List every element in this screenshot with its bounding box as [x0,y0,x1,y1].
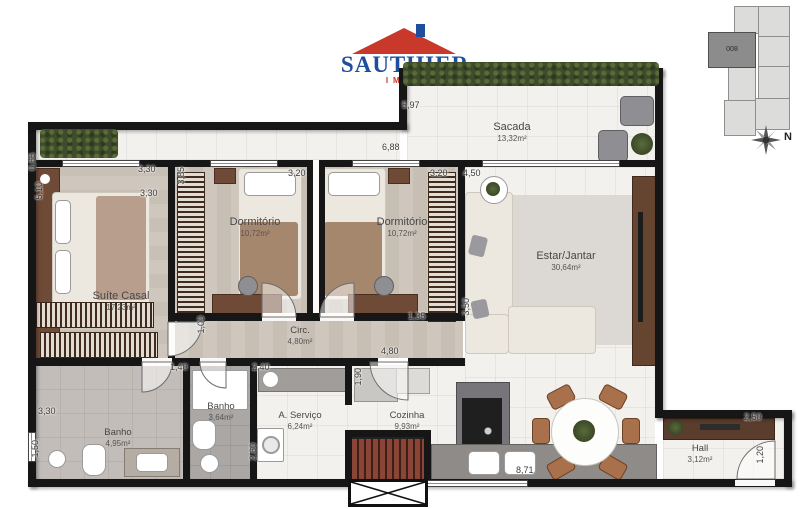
room-area: 9,93m² [367,422,447,431]
dim-label: 1,20 [755,446,765,464]
dorm2-door-arc [320,283,354,317]
room-label-circ: Circ. 4,80m² [268,326,332,346]
room-name: Dormitório [205,216,305,229]
dim-label: 4,50 [463,168,481,178]
banho-social-door-arc [200,362,226,388]
room-name: Hall [670,444,730,455]
room-area: 4,95m² [87,439,149,448]
room-label-sacada: Sacada 13,32m² [472,121,552,143]
room-name: Banho [192,402,250,413]
room-area: 17,23m² [71,303,171,312]
dim-label: 8,71 [516,465,534,475]
room-label-estar: Estar/Jantar 30,64m² [516,250,616,272]
room-area: 3,64m² [192,413,250,422]
dorm1-door-arc [262,283,296,317]
dim-label: 1,35 [408,311,426,321]
room-area: 6,24m² [260,422,340,431]
room-name: Estar/Jantar [516,250,616,263]
room-name: Sacada [472,121,552,134]
dim-label: 5,10 [34,182,44,200]
dim-label: 1,00 [196,316,206,334]
dim-label: 3,30 [38,406,56,416]
room-label-banho-suite: Banho 4,95m² [87,428,149,448]
room-area: 4,80m² [268,337,332,346]
dim-label: 3,30 [138,164,156,174]
room-label-banho-social: Banho 3,64m² [192,402,250,422]
room-area: 30,64m² [516,263,616,272]
room-name: Dormitório [352,216,452,229]
room-name: Suíte Casal [71,290,171,303]
dim-label: 3,20 [430,168,448,178]
dim-label: 6,88 [382,142,400,152]
dim-label: 5,97 [402,100,420,110]
dim-label: 2,40 [252,362,270,372]
dim-label: 3,30 [140,188,158,198]
dim-label: 3,85 [176,167,186,185]
floorplan-canvas: SAUTHIER IMÓVEIS 008 N [0,0,800,509]
room-name: Cozinha [367,411,447,422]
room-name: Circ. [268,326,332,337]
elevator-icon [348,479,428,507]
room-label-suite: Suíte Casal 17,23m² [71,290,171,312]
room-label-hall: Hall 3,12m² [670,444,730,464]
room-label-dorm1: Dormitório 10,72m² [205,216,305,238]
dim-label: 2,60 [248,443,258,461]
room-area: 13,32m² [472,134,552,143]
dim-label: 4,80 [381,346,399,356]
dim-label: 3,50 [461,298,471,316]
room-area: 10,72m² [205,229,305,238]
dim-label: 1,90 [353,368,363,386]
room-area: 3,12m² [670,455,730,464]
room-area: 10,72m² [352,229,452,238]
room-label-dorm2: Dormitório 10,72m² [352,216,452,238]
room-label-cozinha: Cozinha 9,93m² [367,411,447,431]
dim-label: 2,50 [744,412,762,422]
cozinha-door-arc [370,362,408,400]
banho-suite-door-arc [142,362,172,392]
dim-label: 0,65 [27,153,37,171]
room-name: A. Serviço [260,411,340,422]
dim-label: 1,50 [30,440,40,458]
dim-label: 1,40 [170,362,188,372]
room-name: Banho [87,428,149,439]
room-label-servico: A. Serviço 6,24m² [260,411,340,431]
dim-label: 3,20 [288,168,306,178]
